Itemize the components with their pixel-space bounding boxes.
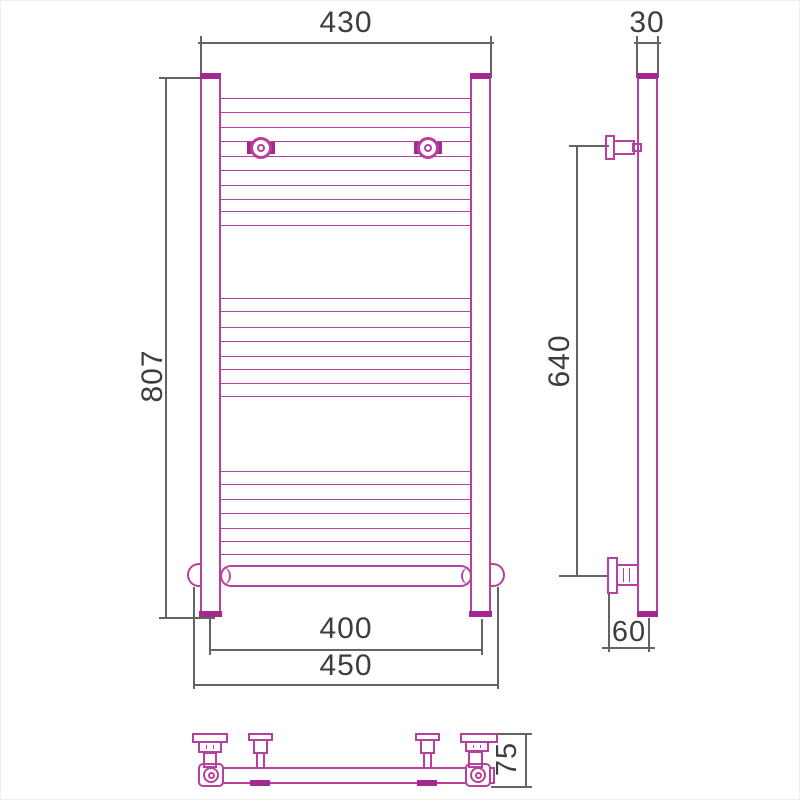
rung-line — [221, 199, 471, 200]
dim-overall-height-label: 807 — [137, 321, 169, 431]
riser-left — [200, 77, 221, 617]
technical-drawing: 430 30 807 640 400 450 60 75 — [0, 0, 800, 800]
plan-bracket-outer-left-stem — [203, 752, 217, 768]
rung-line — [221, 298, 471, 299]
rung-line — [221, 327, 471, 328]
rung-line — [221, 185, 471, 186]
dim-tube-depth-label: 30 — [617, 7, 677, 39]
rung-line — [221, 211, 471, 212]
side-lower-bracket-stem — [616, 564, 639, 586]
dim-bottom-outer-ext-left — [193, 587, 195, 689]
plan-bracket-outer-right-ridge2 — [480, 745, 481, 748]
dim-overall-width-ext-right — [490, 36, 492, 78]
dim-bracket-offset-label: 60 — [599, 616, 659, 648]
dim-bottom-inner-ext-right — [481, 619, 483, 655]
riser-right — [470, 77, 491, 617]
plan-corner-right-hole — [475, 772, 482, 779]
plan-bracket-outer-right-ridge — [473, 745, 474, 748]
dim-bracket-span-ext-top — [569, 145, 609, 147]
bottom-bracket-right-front — [491, 563, 505, 587]
rung-line — [221, 311, 471, 312]
dim-overall-height-ext-bottom — [159, 617, 215, 619]
plan-bracket-inner-left-stem — [256, 752, 265, 769]
riser-right-top-plug — [470, 73, 491, 79]
plan-bracket-outer-left-ridge2 — [213, 745, 214, 749]
dim-bracket-span-ext-bottom — [559, 575, 609, 577]
riser-right-foot — [469, 611, 492, 617]
plan-bracket-outer-right-stem — [468, 751, 483, 768]
plan-inner-left-foot — [250, 780, 270, 786]
rung-line — [221, 499, 471, 500]
rung-line — [221, 528, 471, 529]
wall-bracket-left-hole — [257, 144, 265, 152]
side-lower-bracket-ridge-a — [623, 568, 624, 582]
riser-left-top-plug — [200, 73, 221, 79]
rung-line — [221, 484, 471, 485]
plan-bracket-inner-right-stem — [423, 752, 432, 769]
dim-overall-width-ext-left — [200, 36, 202, 78]
side-tube-top-plug — [637, 73, 658, 79]
side-lower-bracket-ridge-b — [629, 568, 630, 582]
wall-bracket-right-hole — [424, 144, 432, 152]
bottom-bracket-left-front — [187, 563, 201, 587]
rung-line — [221, 341, 471, 342]
plan-corner-left-hole — [208, 772, 215, 779]
rung-line — [221, 471, 471, 472]
plan-bracket-outer-left-ridge — [206, 745, 207, 749]
dim-bottom-outer-ext-right — [497, 587, 499, 689]
rung-line — [221, 127, 471, 128]
dim-plan-depth-label: 75 — [491, 704, 523, 800]
dim-bracket-span-line — [576, 145, 578, 577]
dim-tube-depth-ext-left — [636, 36, 638, 78]
dim-tube-depth-ext-right — [657, 36, 659, 78]
rung-line — [221, 369, 471, 370]
rung-line — [221, 356, 471, 357]
rung-line — [221, 554, 471, 555]
rung-line — [221, 225, 471, 226]
side-tube-bottom-plug — [637, 611, 658, 617]
rung-line — [221, 541, 471, 542]
plan-inner-right-foot — [417, 780, 437, 786]
dim-bracket-span-label: 640 — [544, 306, 576, 416]
dim-bottom-inner-ext-left — [209, 619, 211, 655]
rung-line — [221, 98, 471, 99]
rung-line — [221, 513, 471, 514]
rung-line — [221, 112, 471, 113]
riser-left-foot — [199, 611, 222, 617]
side-upper-bracket-nipple — [632, 143, 642, 152]
rung-line — [221, 383, 471, 384]
rung-group — [221, 1, 471, 800]
dim-plan-depth-line — [525, 733, 527, 787]
rung-line — [221, 170, 471, 171]
side-tube — [637, 77, 658, 617]
rung-line — [221, 396, 471, 397]
